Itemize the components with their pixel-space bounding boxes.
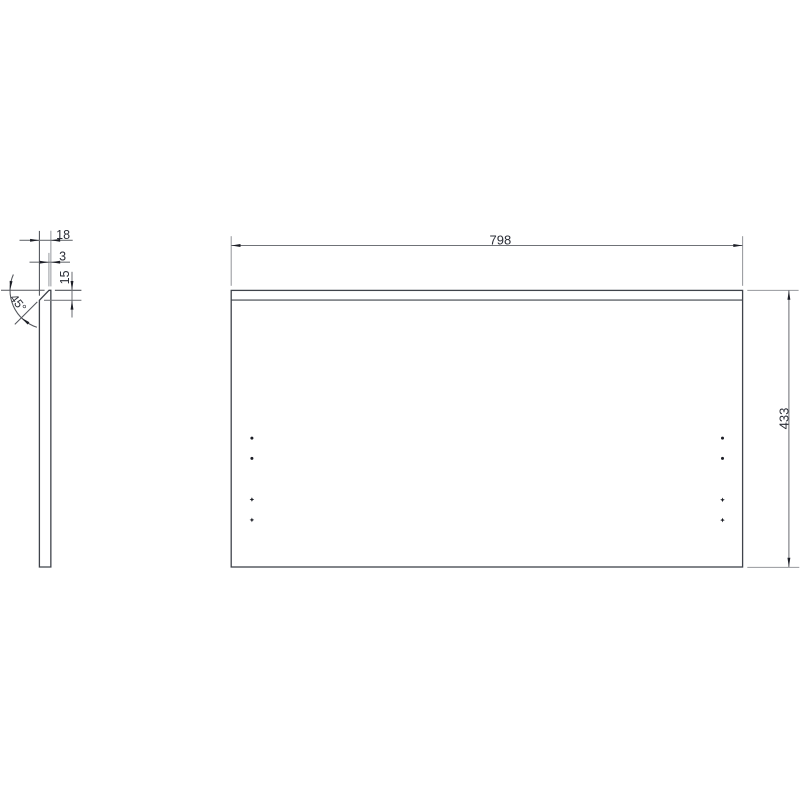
svg-text:3: 3: [59, 250, 66, 264]
svg-text:433: 433: [777, 408, 792, 430]
svg-text:18: 18: [56, 228, 70, 242]
svg-text:15: 15: [58, 270, 72, 284]
svg-text:798: 798: [490, 233, 512, 248]
